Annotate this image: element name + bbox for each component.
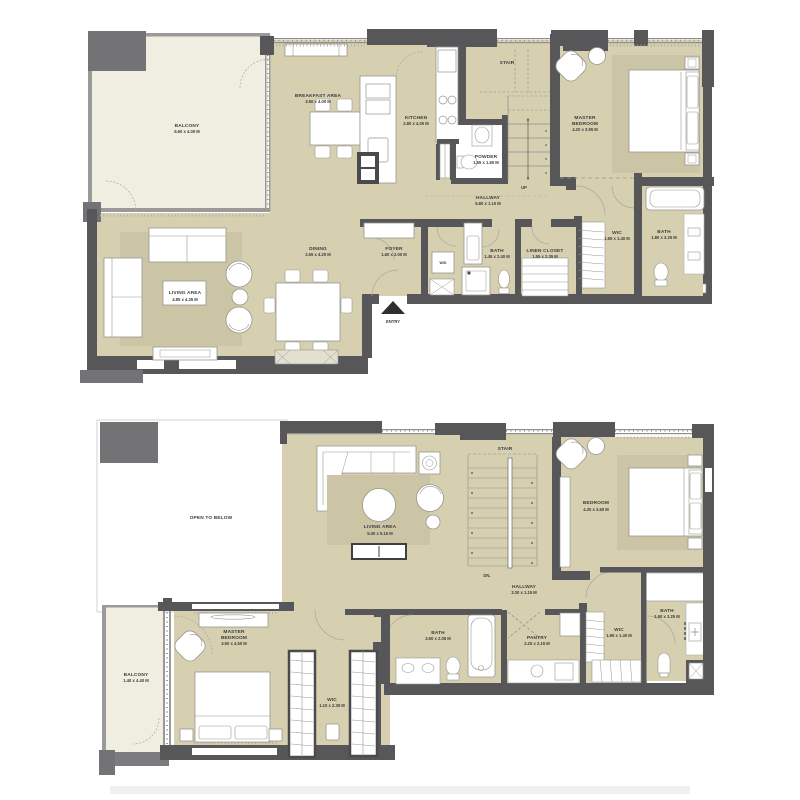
svg-text:LIVING AREA: LIVING AREA: [169, 290, 202, 296]
svg-text:1.60 x 3.25 M: 1.60 x 3.25 M: [654, 614, 680, 619]
svg-text:1.80 x 3.25 M: 1.80 x 3.25 M: [651, 235, 677, 240]
svg-text:1.55 x 1.60 M: 1.55 x 1.60 M: [473, 160, 499, 165]
svg-text:ENTRY: ENTRY: [386, 319, 400, 324]
svg-text:5.60 x 4.00 M: 5.60 x 4.00 M: [174, 129, 200, 134]
svg-text:MASTER: MASTER: [223, 629, 245, 635]
svg-text:2.80 x 4.00 M: 2.80 x 4.00 M: [403, 121, 429, 126]
svg-text:LIVING AREA: LIVING AREA: [364, 524, 397, 530]
svg-text:3.50 x 4.00 M: 3.50 x 4.00 M: [305, 99, 331, 104]
svg-text:2.65 x 4.20 M: 2.65 x 4.20 M: [305, 252, 331, 257]
svg-text:OPEN TO BELOW: OPEN TO BELOW: [190, 515, 233, 521]
svg-text:STAIR: STAIR: [500, 60, 515, 66]
svg-text:1.60 x 2.00 M: 1.60 x 2.00 M: [381, 252, 407, 257]
svg-text:MASTER: MASTER: [574, 115, 596, 121]
svg-text:5.30 x 5.10 M: 5.30 x 5.10 M: [367, 531, 393, 536]
svg-text:W/D: W/D: [440, 261, 447, 265]
svg-text:4.20 x 3.95 M: 4.20 x 3.95 M: [572, 127, 598, 132]
svg-text:3.60 x 2.05 M: 3.60 x 2.05 M: [425, 636, 451, 641]
svg-text:1.55 x 2.35 M: 1.55 x 2.35 M: [532, 254, 558, 259]
svg-text:DN.: DN.: [483, 573, 490, 578]
svg-text:STAIR: STAIR: [498, 446, 513, 452]
svg-text:5.80 x 1.10 M: 5.80 x 1.10 M: [475, 201, 501, 206]
svg-text:3.50 x 4.50 M: 3.50 x 4.50 M: [221, 641, 247, 646]
svg-text:2.25 x 2.15 M: 2.25 x 2.15 M: [524, 641, 550, 646]
svg-text:BEDROOM: BEDROOM: [583, 500, 609, 506]
svg-text:1.10 x 2.30 M: 1.10 x 2.30 M: [319, 703, 345, 708]
svg-text:1.65 x 1.40 M: 1.65 x 1.40 M: [604, 236, 630, 241]
svg-text:4.30 x 3.60 M: 4.30 x 3.60 M: [583, 507, 609, 512]
svg-text:1.40 x 4.40 M: 1.40 x 4.40 M: [123, 678, 149, 683]
svg-text:4.85 x 4.35 M: 4.85 x 4.35 M: [172, 297, 198, 302]
svg-text:1.95 x 1.40 M: 1.95 x 1.40 M: [606, 633, 632, 638]
svg-text:1.45 x 2.40 M: 1.45 x 2.40 M: [484, 254, 510, 259]
svg-text:UP: UP: [521, 185, 527, 190]
svg-text:3.30 x 1.15 M: 3.30 x 1.15 M: [511, 590, 537, 595]
